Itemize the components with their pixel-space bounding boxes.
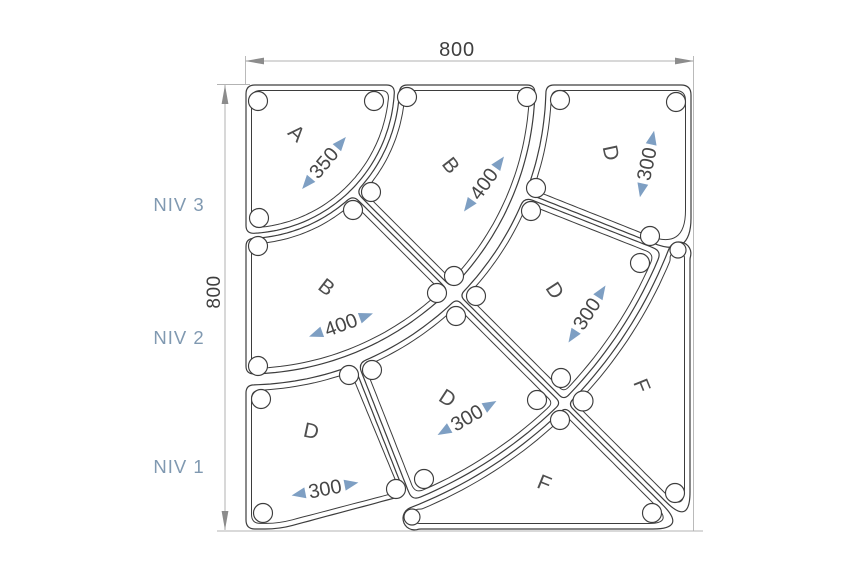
svg-text:D: D	[435, 385, 460, 413]
svg-text:800: 800	[439, 39, 475, 61]
svg-text:800: 800	[204, 275, 225, 308]
svg-text:B: B	[437, 153, 464, 178]
svg-text:A: A	[283, 120, 309, 146]
svg-text:NIV 2: NIV 2	[153, 327, 204, 348]
svg-text:D: D	[301, 419, 321, 445]
svg-text:350: 350	[305, 143, 343, 183]
svg-text:400: 400	[322, 309, 361, 341]
svg-text:NIV 3: NIV 3	[153, 194, 204, 215]
svg-text:300: 300	[569, 294, 606, 334]
svg-text:F: F	[534, 470, 555, 496]
svg-text:D: D	[541, 278, 569, 303]
svg-text:300: 300	[307, 476, 344, 504]
svg-text:D: D	[598, 143, 624, 163]
svg-text:400: 400	[466, 164, 503, 204]
svg-text:300: 300	[447, 401, 487, 437]
svg-text:F: F	[628, 376, 654, 397]
svg-text:B: B	[314, 274, 339, 301]
svg-text:NIV 1: NIV 1	[153, 456, 204, 477]
svg-text:300: 300	[633, 145, 661, 182]
